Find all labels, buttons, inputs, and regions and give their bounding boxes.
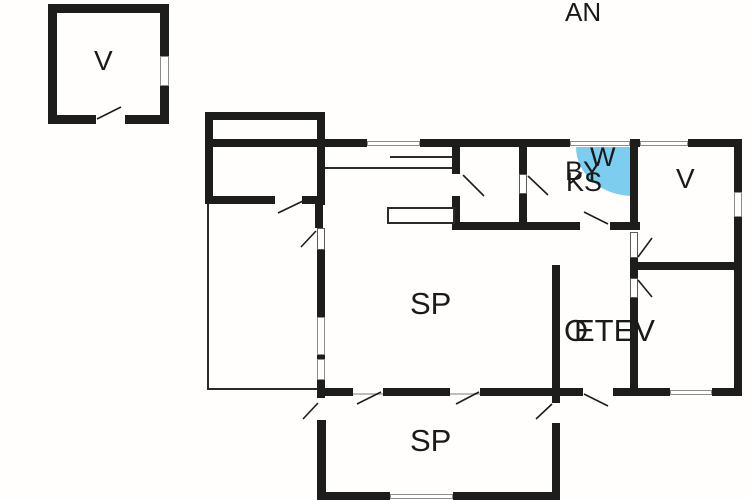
room-label-v-right: V xyxy=(676,165,695,193)
door-threshold xyxy=(353,393,383,395)
wall-segment xyxy=(519,146,527,174)
wall-segment xyxy=(205,139,367,147)
wall-segment xyxy=(734,217,742,396)
room-label-sp-bottom: SP xyxy=(410,425,451,456)
window xyxy=(160,56,169,86)
floor-plan: VANWBYKSVSPOETEVSP xyxy=(0,0,750,500)
window xyxy=(367,141,420,146)
door-swing xyxy=(536,404,552,419)
door-leaf xyxy=(630,278,638,298)
wall-segment xyxy=(552,265,560,392)
wall-segment xyxy=(48,4,168,13)
room-label-ks: KS xyxy=(566,169,602,196)
door-swing xyxy=(528,176,548,195)
wall-segment xyxy=(315,196,323,228)
wall-segment xyxy=(452,222,580,230)
door-leaf xyxy=(317,228,325,250)
wall-segment xyxy=(317,112,325,205)
thin-outline-line xyxy=(207,388,317,390)
wall-segment xyxy=(630,146,638,230)
wall-segment xyxy=(640,388,670,396)
window xyxy=(390,494,453,499)
wall-segment xyxy=(453,492,560,500)
window xyxy=(670,390,712,395)
thin-outline-line xyxy=(207,204,209,390)
room-label-sp-main: SP xyxy=(410,288,451,319)
plan-label-an: AN xyxy=(565,0,601,25)
door-swing xyxy=(301,231,316,247)
room-label-v-outbuilding: V xyxy=(94,47,113,75)
wall-segment xyxy=(452,146,460,174)
wall-segment xyxy=(552,423,560,495)
window xyxy=(734,192,742,217)
door-leaf xyxy=(630,232,638,258)
wall-segment xyxy=(317,250,325,317)
wall-segment xyxy=(205,112,213,204)
door-swing xyxy=(638,280,652,297)
door-threshold xyxy=(450,393,480,395)
wall-segment xyxy=(317,388,353,396)
wall-segment xyxy=(205,112,325,120)
wall-segment xyxy=(734,139,742,192)
wall-segment xyxy=(48,4,57,124)
wall-segment xyxy=(552,395,560,403)
counter-rect xyxy=(387,207,455,224)
door-swing xyxy=(97,107,121,119)
wall-segment xyxy=(383,388,450,396)
thin-outline-line xyxy=(325,167,453,169)
door-swing xyxy=(584,394,608,406)
wall-segment xyxy=(633,262,742,270)
wall-segment xyxy=(125,115,169,124)
door-swing xyxy=(303,403,318,419)
room-label-etev: ETEV xyxy=(574,315,655,346)
thin-outline-line xyxy=(390,156,453,158)
door-swing xyxy=(638,238,652,257)
wall-segment xyxy=(420,139,570,147)
wall-segment xyxy=(317,492,390,500)
window xyxy=(640,141,688,146)
wall-segment xyxy=(205,196,275,204)
window xyxy=(317,317,325,355)
wall-segment xyxy=(48,115,96,124)
wall-segment xyxy=(317,420,326,500)
door-leaf xyxy=(519,174,527,194)
wall-segment xyxy=(613,388,640,396)
wall-segment xyxy=(480,388,583,396)
door-swing xyxy=(278,201,303,213)
window xyxy=(317,359,325,380)
door-swing xyxy=(584,212,608,224)
door-swing xyxy=(463,175,484,196)
